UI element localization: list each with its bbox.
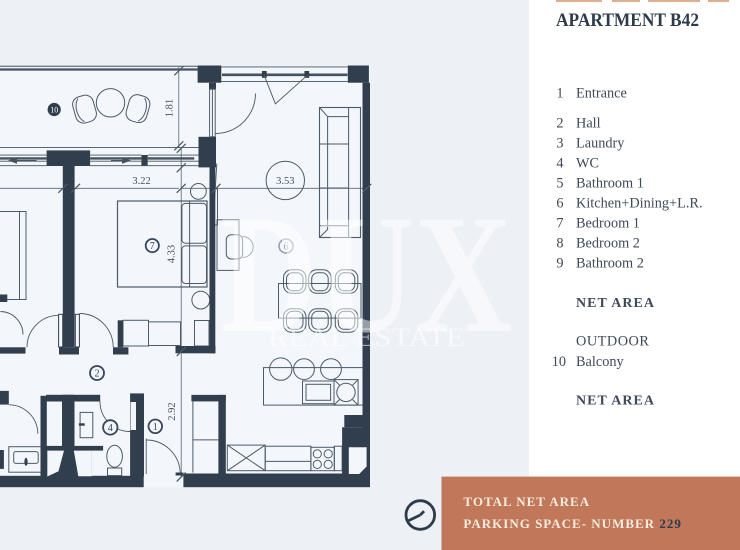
svg-text:OUTDOOR: OUTDOOR [576,334,649,350]
svg-text:PARKING SPACE- NUMBER 229: PARKING SPACE- NUMBER 229 [463,516,681,531]
svg-text:Entrance: Entrance [576,86,627,102]
svg-text:APARTMENT B42: APARTMENT B42 [556,11,699,31]
svg-text:2: 2 [556,116,563,132]
svg-text:REAL ESTATE: REAL ESTATE [268,323,465,352]
svg-text:6: 6 [556,196,563,212]
svg-text:1: 1 [556,86,563,102]
svg-text:10: 10 [50,106,58,115]
svg-text:1: 1 [153,422,158,433]
svg-text:3.22: 3.22 [132,176,150,187]
svg-text:4: 4 [556,156,563,172]
svg-text:WC: WC [576,156,599,172]
svg-text:TOTAL NET AREA: TOTAL NET AREA [463,494,590,509]
svg-text:Kitchen+Dining+L.R.: Kitchen+Dining+L.R. [576,196,703,212]
svg-text:Hall: Hall [576,116,601,132]
svg-text:2.92: 2.92 [167,402,178,420]
svg-text:NET AREA: NET AREA [576,296,655,311]
svg-text:NET AREA: NET AREA [576,394,655,409]
svg-text:Bathroom 2: Bathroom 2 [576,256,644,272]
svg-text:5: 5 [556,176,563,192]
svg-text:Balcony: Balcony [576,354,624,370]
svg-text:Bathroom 1: Bathroom 1 [576,176,644,192]
svg-text:8: 8 [556,236,563,252]
svg-text:9: 9 [556,256,563,272]
svg-text:Laundry: Laundry [576,136,625,152]
svg-text:Bedroom 1: Bedroom 1 [576,216,640,232]
svg-text:2: 2 [95,369,100,380]
svg-text:4: 4 [108,423,114,434]
svg-text:1.81: 1.81 [164,99,175,117]
svg-text:4.33: 4.33 [166,245,177,263]
svg-text:3: 3 [556,136,563,152]
svg-text:Bedroom 2: Bedroom 2 [576,236,640,252]
svg-text:7: 7 [556,216,563,232]
svg-text:7: 7 [150,241,155,252]
svg-text:10: 10 [552,354,566,370]
